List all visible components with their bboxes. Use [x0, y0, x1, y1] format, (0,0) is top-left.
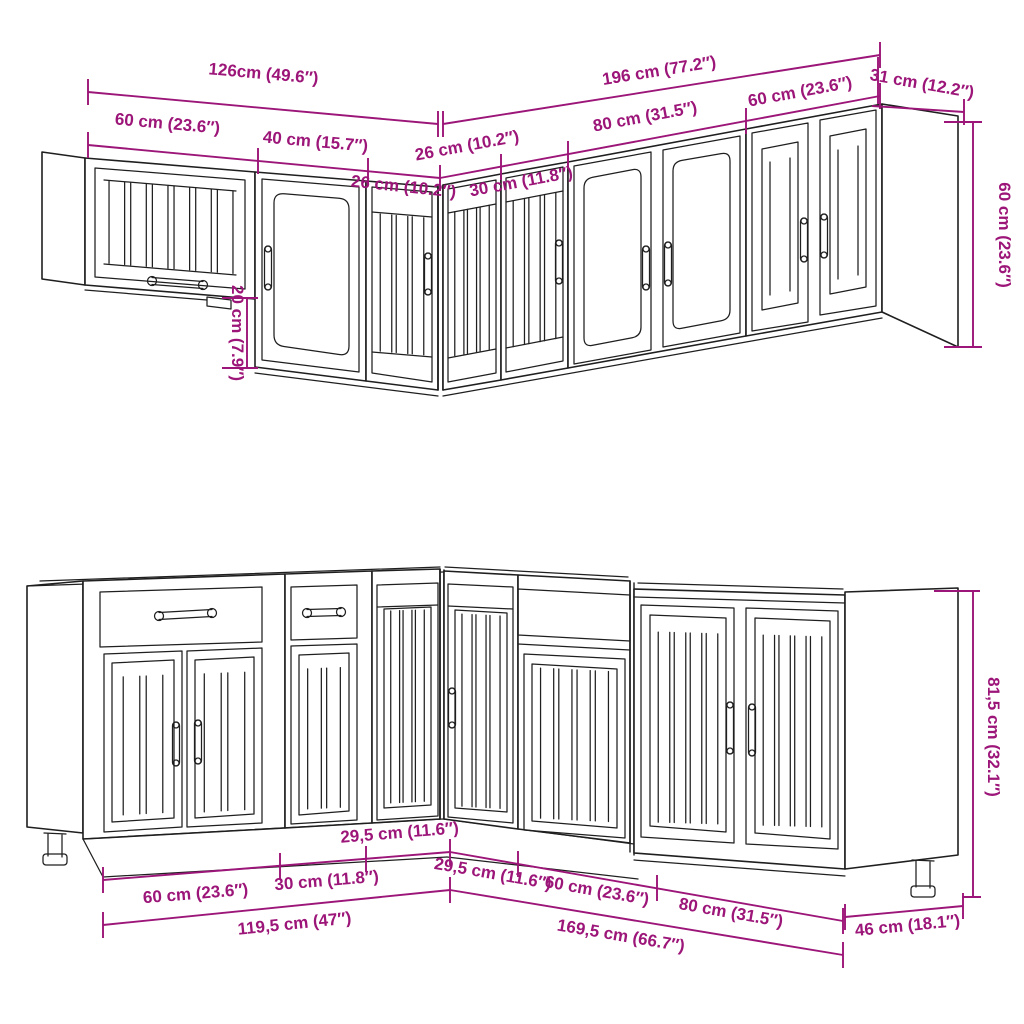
dim-label-top-seg-26-right: 26 cm (10.2″)	[413, 127, 520, 165]
dim-label-bottom-seg-60-left: 60 cm (23.6″)	[142, 880, 249, 907]
dim-label-bottom-seg-30: 30 cm (11.8″)	[274, 867, 380, 894]
dim-label-top-seg-40: 40 cm (15.7″)	[262, 127, 369, 155]
dim-label-top-seg-60-left: 60 cm (23.6″)	[114, 109, 221, 137]
dim-label-bottom-total-left: 119,5 cm (47″)	[237, 908, 352, 938]
dim-label-bottom-total-right: 169,5 cm (66.7″)	[556, 916, 686, 956]
dim-label-top-height-offset: 20 cm (7.9″)	[228, 285, 247, 381]
cabinet-line-art	[27, 104, 958, 897]
dim-label-bottom-seg-80: 80 cm (31.5″)	[677, 894, 784, 931]
diagram-svg: 126cm (49.6″) 196 cm (77.2″) 31 cm (12.2…	[0, 0, 1024, 1024]
dim-label-top-depth-right: 31 cm (12.2″)	[868, 65, 975, 102]
dim-label-top-seg-80: 80 cm (31.5″)	[591, 98, 698, 136]
kitchen-cabinet-dimension-diagram: 126cm (49.6″) 196 cm (77.2″) 31 cm (12.2…	[0, 0, 1024, 1024]
dim-label-top-total-left: 126cm (49.6″)	[208, 59, 319, 88]
dim-label-top-height-right: 60 cm (23.6″)	[995, 182, 1014, 287]
dim-label-bottom-height-right: 81,5 cm (32.1″)	[984, 677, 1003, 797]
